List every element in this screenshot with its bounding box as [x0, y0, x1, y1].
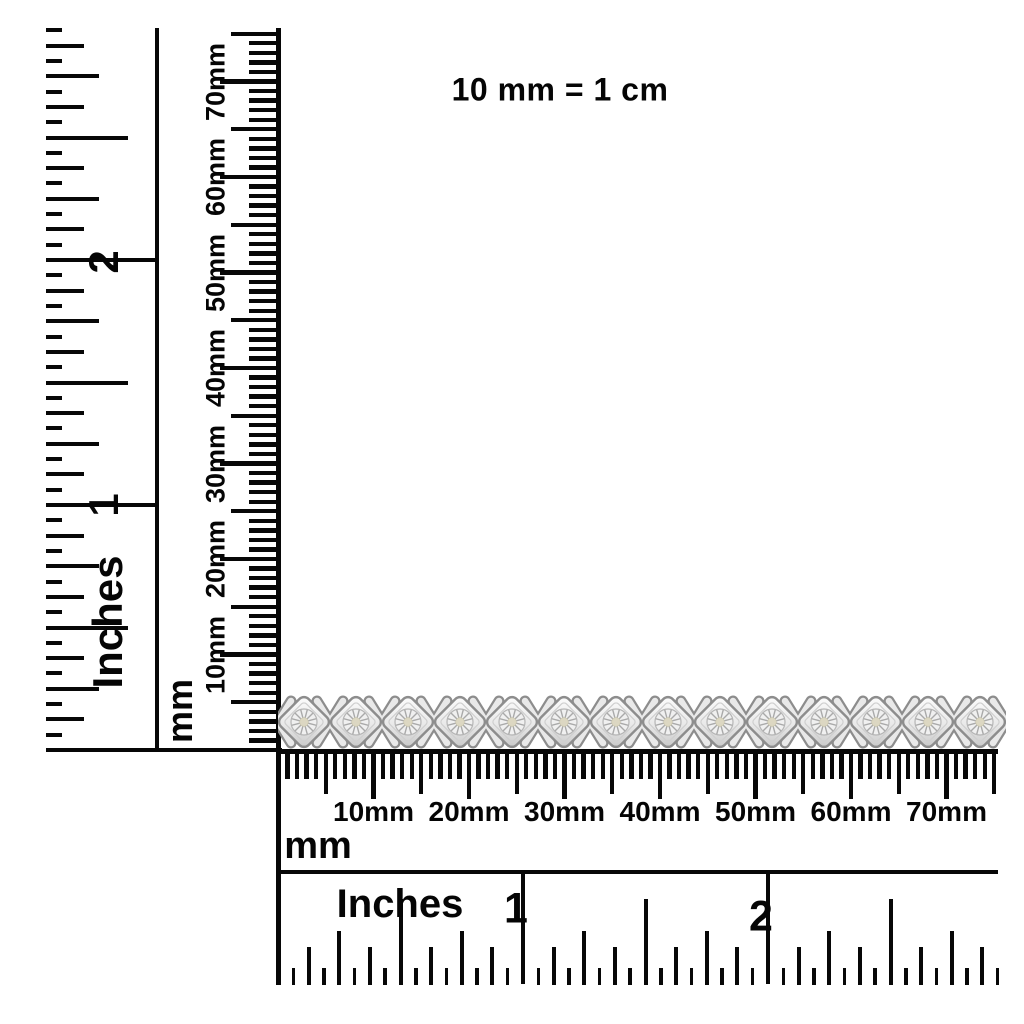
ruler-tick — [383, 968, 387, 985]
ruler-tick — [735, 947, 739, 985]
ruler-tick — [490, 947, 494, 985]
ruler-tick — [996, 968, 1000, 985]
ruler-tick — [368, 947, 372, 985]
ruler-baseline — [276, 870, 998, 874]
inch-label-2: 2 — [749, 896, 773, 939]
ruler-tick — [751, 968, 755, 985]
ruler-tick — [644, 899, 648, 985]
ruler-tick — [598, 968, 602, 985]
inches-unit-label: Inches — [337, 884, 464, 924]
ruler-tick — [950, 931, 954, 985]
ruler-tick — [322, 968, 326, 985]
inch-label-1: 1 — [504, 888, 528, 931]
ruler-tick — [292, 968, 296, 985]
ruler-tick — [827, 931, 831, 985]
ruler-tick — [904, 968, 908, 985]
ruler-left-edge — [276, 750, 281, 985]
ruler-tick — [506, 968, 510, 985]
ruler-tick — [414, 968, 418, 985]
ruler-tick — [919, 947, 923, 985]
ruler-tick — [537, 968, 541, 985]
ruler-tick — [720, 968, 724, 985]
ruler-tick — [307, 947, 311, 985]
ruler-tick — [690, 968, 694, 985]
ruler-tick — [812, 968, 816, 985]
ruler-tick — [705, 931, 709, 985]
ruler-tick — [980, 947, 984, 985]
ruler-tick — [873, 968, 877, 985]
ruler-tick — [674, 947, 678, 985]
ruler-tick — [935, 968, 939, 985]
ruler-tick — [659, 968, 663, 985]
ruler-tick — [429, 947, 433, 985]
ruler-tick — [965, 968, 969, 985]
ruler-tick — [582, 931, 586, 985]
ruler-tick — [628, 968, 632, 985]
ruler-tick — [889, 899, 893, 985]
ruler-tick — [782, 968, 786, 985]
ruler-tick — [337, 931, 341, 985]
ruler-tick — [843, 968, 847, 985]
ruler-tick — [858, 947, 862, 985]
ruler-tick — [613, 947, 617, 985]
ruler-tick — [797, 947, 801, 985]
bottom-inches-ruler: 12Inches — [0, 0, 1024, 1024]
ruler-tick — [567, 968, 571, 985]
ruler-tick — [460, 931, 464, 985]
ruler-tick — [445, 968, 449, 985]
ruler-tick — [475, 968, 479, 985]
ruler-tick — [353, 968, 357, 985]
ruler-tick — [552, 947, 556, 985]
measurement-image: 10 mm = 1 cm 12Inches 10mm20mm30mm40mm50… — [0, 0, 1024, 1024]
